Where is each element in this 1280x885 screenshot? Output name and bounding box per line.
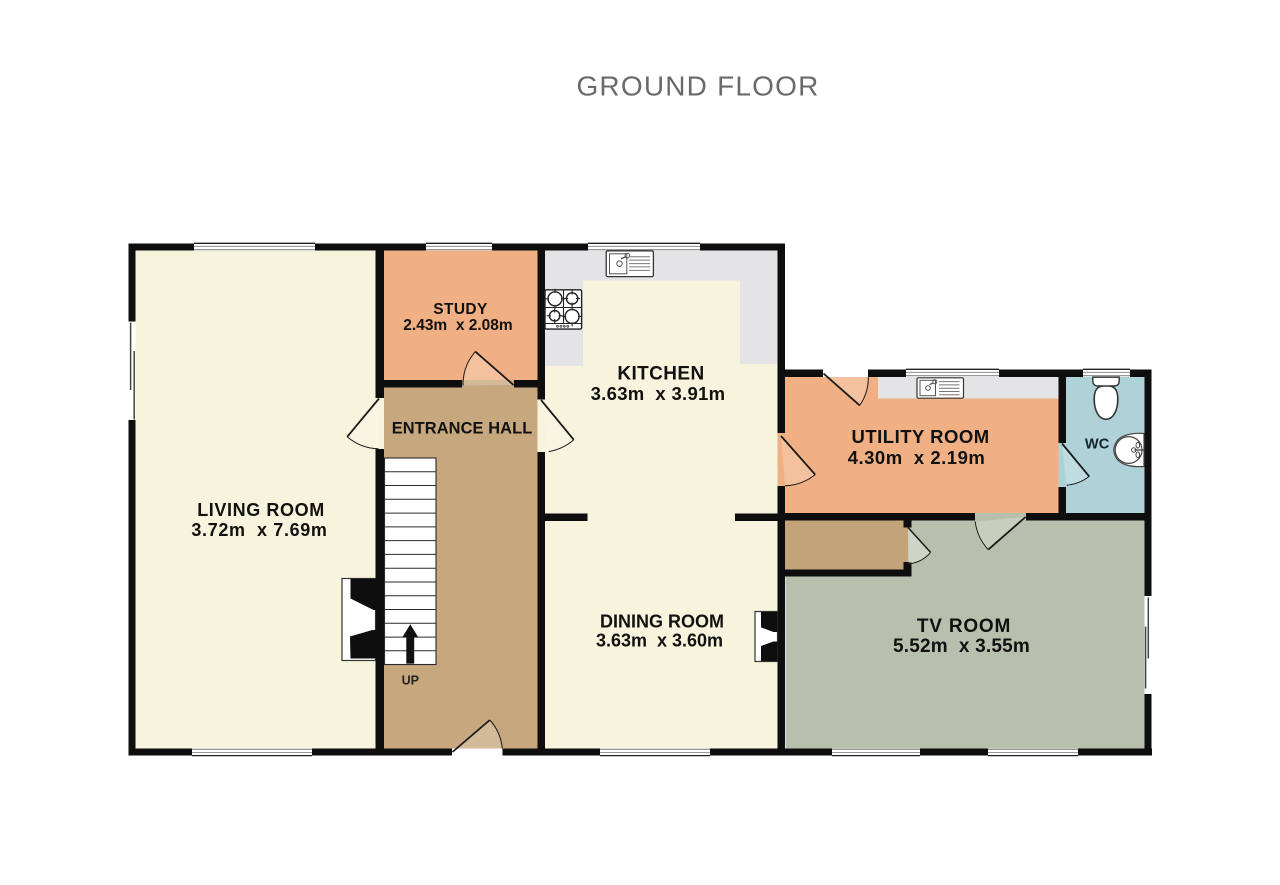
svg-text:4.30m x 2.19m: 4.30m x 2.19m [848,447,986,468]
svg-text:3.72m x 7.69m: 3.72m x 7.69m [191,520,327,540]
svg-text:KITCHEN: KITCHEN [617,363,704,384]
svg-text:LIVING ROOM: LIVING ROOM [197,500,325,520]
svg-text:UTILITY ROOM: UTILITY ROOM [851,426,989,447]
svg-text:WC: WC [1085,436,1110,452]
svg-text:2.43m x 2.08m: 2.43m x 2.08m [403,317,512,334]
svg-text:UP: UP [402,674,419,688]
svg-text:ENTRANCE HALL: ENTRANCE HALL [392,420,533,438]
svg-text:5.52m x 3.55m: 5.52m x 3.55m [893,636,1030,657]
svg-text:3.63m x 3.60m: 3.63m x 3.60m [596,630,723,650]
svg-text:3.63m x 3.91m: 3.63m x 3.91m [591,383,726,404]
svg-text:TV ROOM: TV ROOM [917,616,1011,637]
svg-text:STUDY: STUDY [433,301,488,318]
svg-text:GROUND FLOOR: GROUND FLOOR [576,71,819,102]
svg-text:DINING ROOM: DINING ROOM [600,612,724,632]
